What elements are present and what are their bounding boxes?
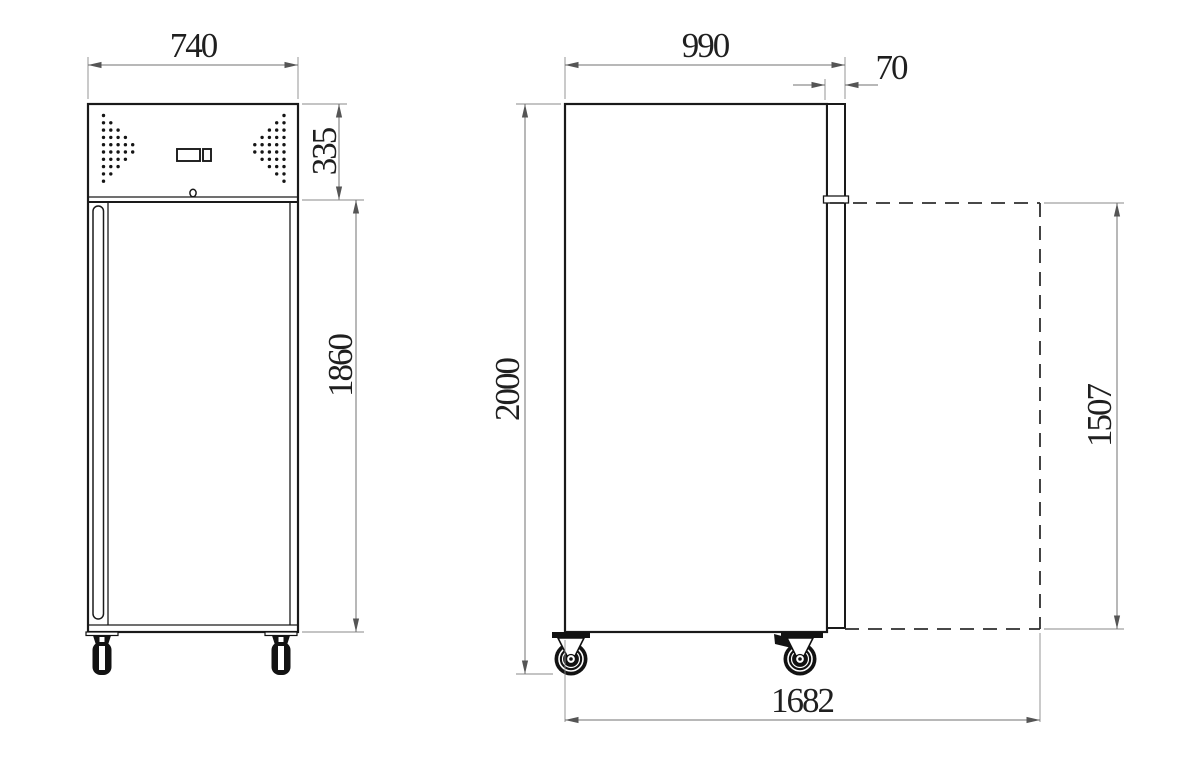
side-view: 990 70 2000 1507 1682 <box>488 26 1124 722</box>
caster-side-front <box>552 632 590 676</box>
dim-label-740: 740 <box>170 26 218 65</box>
dim-door-section-height: 1860 <box>302 200 364 632</box>
dim-label-335: 335 <box>305 127 344 175</box>
dim-compartment-height: 335 <box>302 104 347 200</box>
dim-label-1507: 1507 <box>1080 384 1119 448</box>
drawing-page: 740 335 1860 <box>0 0 1200 764</box>
dim-label-1860: 1860 <box>321 334 360 398</box>
dim-door-thickness: 70 <box>793 48 908 100</box>
caster-front-right <box>265 632 297 675</box>
dim-label-70: 70 <box>876 48 909 87</box>
door-slab <box>827 104 845 628</box>
caster-front-left <box>86 632 118 675</box>
cabinet-outline <box>88 104 298 632</box>
technical-drawing: 740 335 1860 <box>0 0 1200 764</box>
door-handle <box>93 206 104 619</box>
dim-side-depth: 990 <box>565 26 845 99</box>
open-door-dashed-outline <box>830 203 1040 629</box>
dim-label-1682: 1682 <box>771 681 834 720</box>
door-hinge <box>824 196 849 203</box>
caster-side-rear <box>774 632 823 676</box>
dim-label-990: 990 <box>682 26 730 65</box>
side-body-outline <box>565 104 827 632</box>
front-view: 740 335 1860 <box>86 26 364 675</box>
dim-overall-height: 2000 <box>488 104 561 674</box>
dim-front-width: 740 <box>88 26 298 99</box>
dim-open-door-height: 1507 <box>1044 203 1124 629</box>
dim-label-2000: 2000 <box>488 358 527 422</box>
